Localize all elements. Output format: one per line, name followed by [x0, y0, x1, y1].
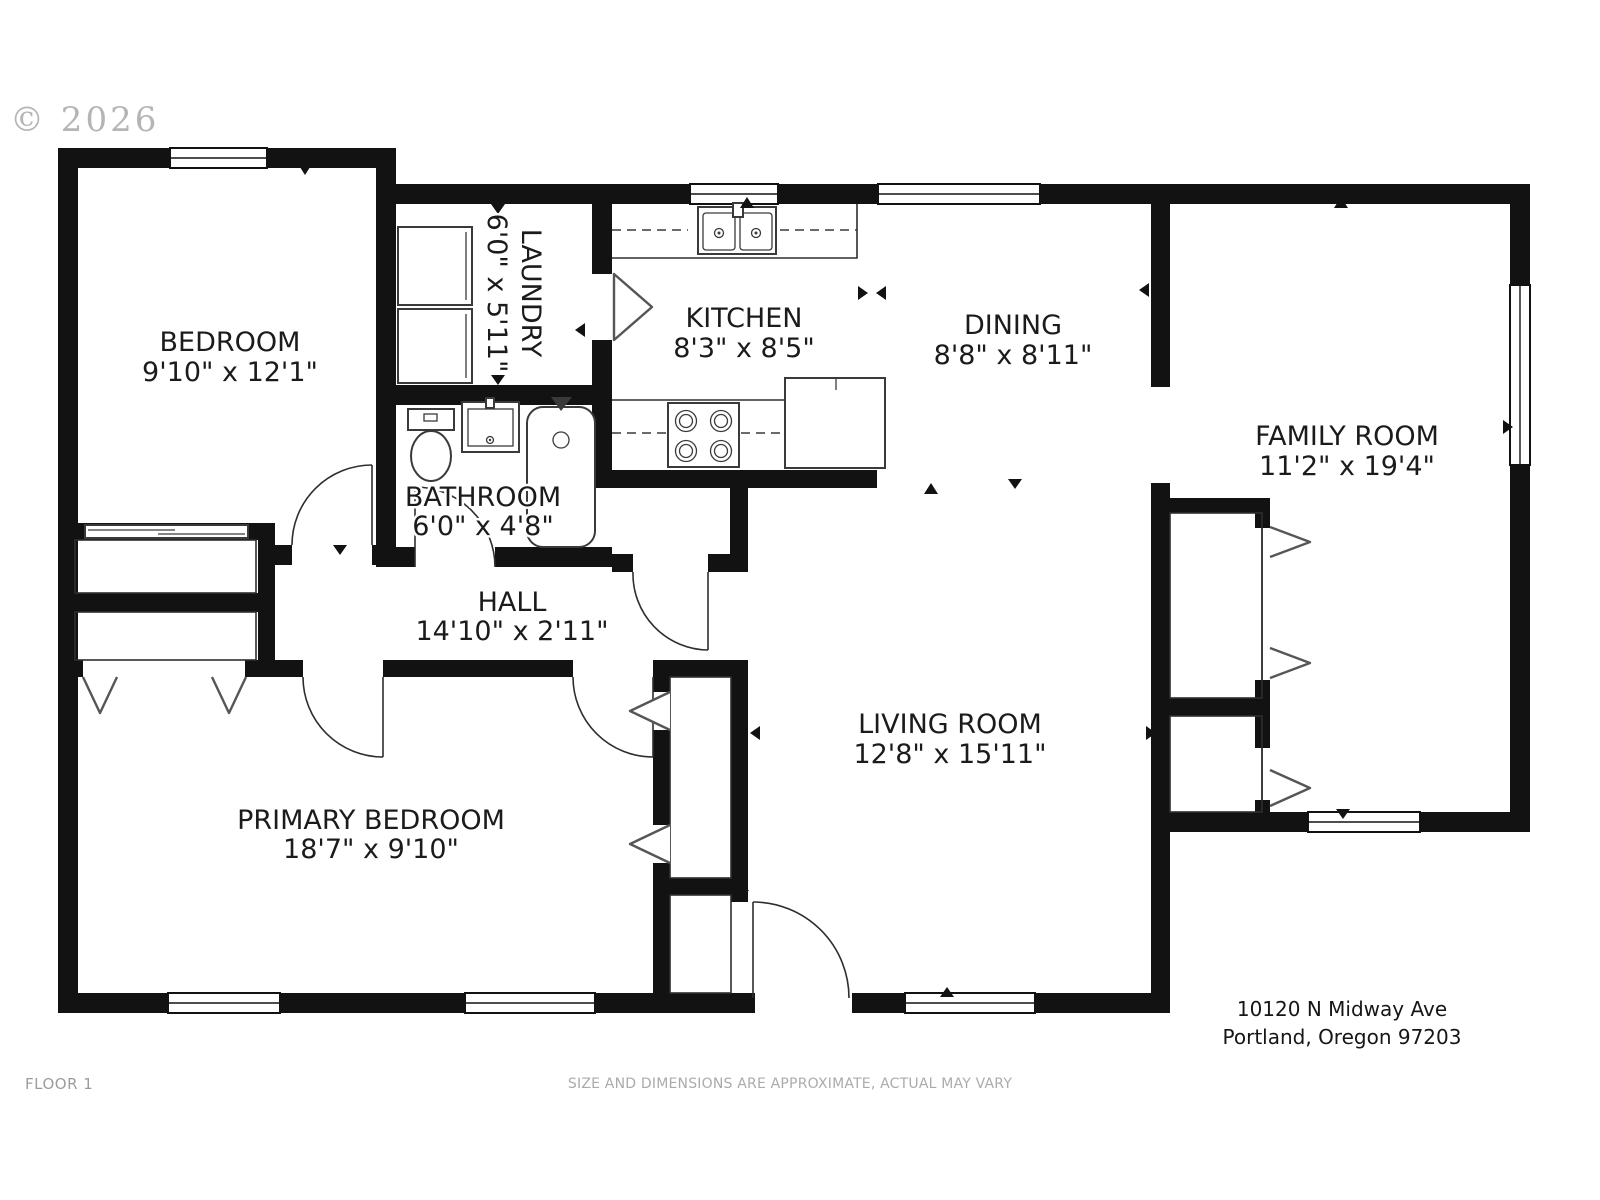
laundry-door-swing: [614, 274, 652, 340]
window: [168, 993, 280, 1013]
room-dimensions: 6'0" x 5'11": [481, 214, 512, 373]
window: [878, 184, 1040, 204]
stove: [668, 403, 739, 467]
room-label-laundry: LAUNDRY 6'0" x 5'11": [481, 214, 546, 373]
room-name: HALL: [478, 587, 547, 618]
window: [690, 184, 778, 204]
door-arc: [303, 677, 383, 757]
entry-door-arc: [753, 902, 849, 998]
room-label-bedroom: BEDROOM 9'10" x 12'1": [142, 327, 318, 388]
window: [905, 993, 1035, 1013]
copyright-text: © 2026: [10, 100, 159, 140]
window: [465, 993, 595, 1013]
bifold-door: [212, 677, 246, 713]
address-line1: 10120 N Midway Ave: [1237, 997, 1447, 1021]
room-dimensions: 11'2" x 19'4": [1259, 451, 1435, 482]
washer: [398, 227, 472, 305]
bifold-door: [1270, 527, 1310, 557]
floor-label: FLOOR 1: [25, 1075, 93, 1093]
opening-markers: [66, 164, 1513, 997]
room-name: LAUNDRY: [515, 229, 546, 358]
vanity-sink: [462, 398, 519, 452]
room-label-primary-bedroom: PRIMARY BEDROOM 18'7" x 9'10": [237, 805, 505, 865]
bifold-door: [83, 677, 117, 713]
windows: [168, 148, 1530, 1013]
bifold-door: [1270, 648, 1310, 678]
toilet: [408, 409, 454, 481]
floor-plan-page: BEDROOM 9'10" x 12'1" LAUNDRY 6'0" x 5'1…: [0, 0, 1600, 1200]
dryer: [398, 309, 472, 383]
room-dimensions: 18'7" x 9'10": [283, 834, 459, 865]
window: [1308, 812, 1420, 832]
window: [1510, 285, 1530, 465]
bifold-door: [1270, 770, 1310, 806]
window: [170, 148, 267, 168]
room-name: FAMILY ROOM: [1255, 421, 1439, 452]
address-line2: Portland, Oregon 97203: [1223, 1025, 1462, 1049]
door-arc: [292, 465, 372, 545]
kitchen-sink: [698, 203, 776, 254]
room-label-bathroom: BATHROOM 6'0" x 4'8": [405, 482, 561, 542]
room-dimensions: 8'3" x 8'5": [673, 333, 815, 364]
room-label-living-room: LIVING ROOM 12'8" x 15'11": [853, 709, 1046, 770]
room-dimensions: 9'10" x 12'1": [142, 357, 318, 388]
floor-plan-drawing: BEDROOM 9'10" x 12'1" LAUNDRY 6'0" x 5'1…: [0, 0, 1600, 1200]
bifold-door: [630, 825, 670, 863]
room-label-family-room: FAMILY ROOM 11'2" x 19'4": [1255, 421, 1439, 482]
room-label-kitchen: KITCHEN 8'3" x 8'5": [673, 303, 815, 364]
room-dimensions: 14'10" x 2'11": [415, 616, 608, 647]
room-name: PRIMARY BEDROOM: [237, 805, 505, 836]
room-label-hall: HALL 14'10" x 2'11": [415, 587, 608, 647]
room-name: BATHROOM: [405, 482, 561, 513]
room-name: DINING: [964, 310, 1062, 341]
room-name: BEDROOM: [160, 327, 301, 358]
room-label-dining: DINING 8'8" x 8'11": [934, 310, 1093, 371]
disclaimer-text: SIZE AND DIMENSIONS ARE APPROXIMATE, ACT…: [568, 1076, 1012, 1092]
room-dimensions: 12'8" x 15'11": [853, 739, 1046, 770]
room-name: LIVING ROOM: [858, 709, 1042, 740]
refrigerator: [785, 378, 885, 468]
bifold-door: [630, 692, 670, 730]
door-arc: [633, 572, 708, 650]
sliding-closet-door: [85, 525, 248, 538]
room-dimensions: 8'8" x 8'11": [934, 340, 1093, 371]
walls: [58, 148, 1530, 1013]
room-name: KITCHEN: [686, 303, 803, 334]
room-dimensions: 6'0" x 4'8": [412, 511, 554, 542]
